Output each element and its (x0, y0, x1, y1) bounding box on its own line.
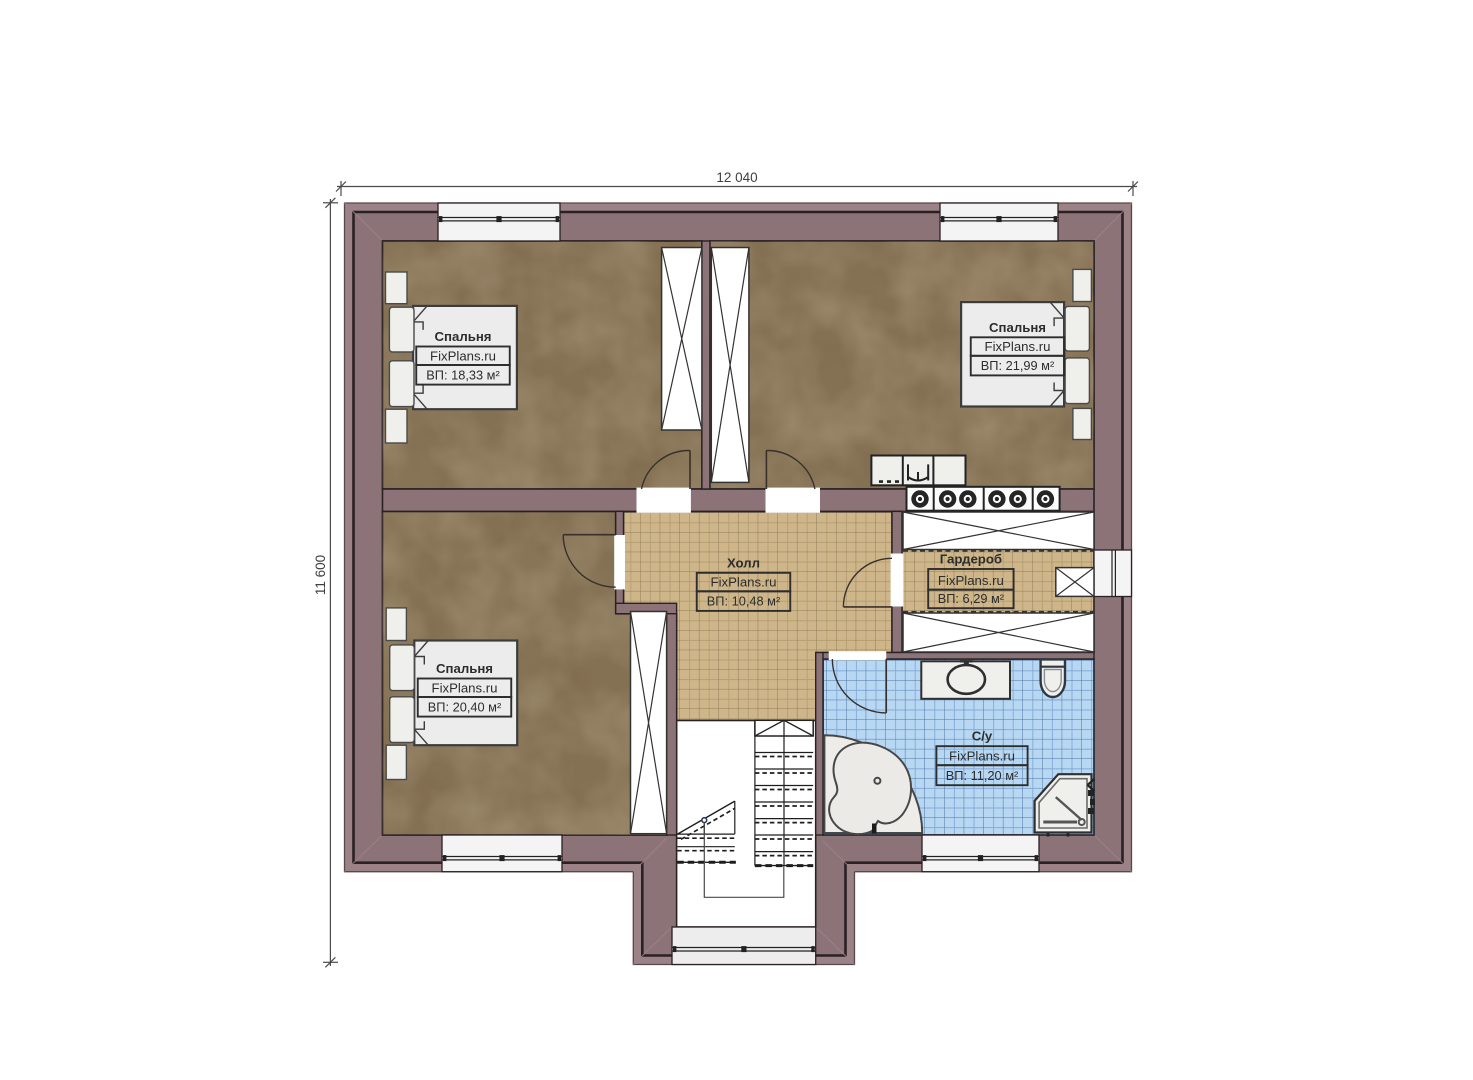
svg-text:FixPlans.ru: FixPlans.ru (938, 573, 1004, 588)
svg-text:12 040: 12 040 (716, 170, 757, 185)
svg-text:FixPlans.ru: FixPlans.ru (430, 348, 496, 363)
svg-text:FixPlans.ru: FixPlans.ru (432, 680, 498, 695)
svg-text:Гардероб: Гардероб (940, 552, 1002, 567)
svg-text:Спальня: Спальня (989, 320, 1046, 335)
svg-text:FixPlans.ru: FixPlans.ru (985, 339, 1051, 354)
svg-text:ВП: 11,20 м²: ВП: 11,20 м² (946, 768, 1019, 783)
svg-text:FixPlans.ru: FixPlans.ru (711, 575, 777, 590)
svg-text:Спальня: Спальня (436, 661, 493, 676)
svg-text:ВП: 20,40 м²: ВП: 20,40 м² (428, 699, 502, 714)
svg-text:С/у: С/у (972, 729, 993, 744)
svg-text:ВП: 6,29 м²: ВП: 6,29 м² (938, 591, 1005, 606)
svg-text:ВП: 21,99 м²: ВП: 21,99 м² (981, 358, 1055, 373)
svg-text:Спальня: Спальня (435, 329, 492, 344)
svg-text:ВП: 10,48 м²: ВП: 10,48 м² (707, 594, 781, 609)
svg-text:Холл: Холл (727, 555, 760, 570)
svg-text:FixPlans.ru: FixPlans.ru (949, 749, 1015, 764)
svg-text:11 600: 11 600 (313, 555, 328, 595)
svg-text:ВП: 18,33 м²: ВП: 18,33 м² (426, 367, 500, 382)
